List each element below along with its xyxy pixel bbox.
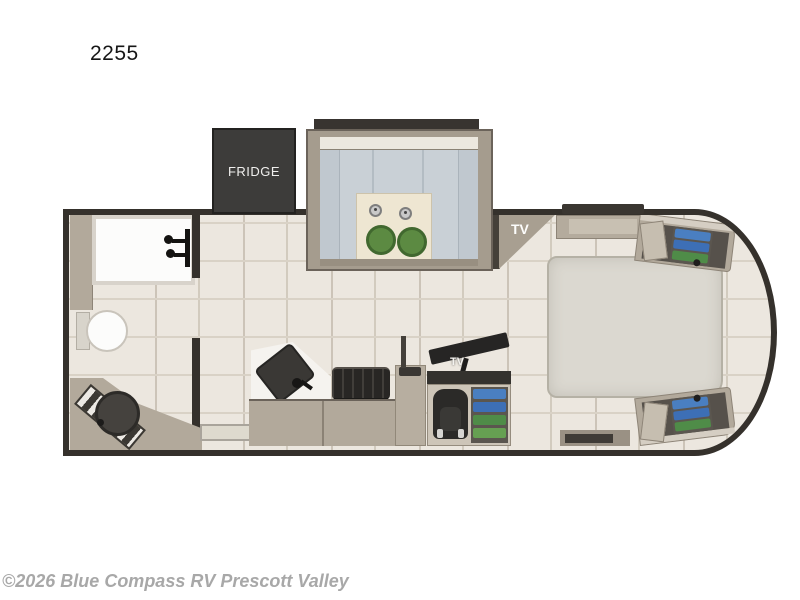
shower-valve-icon: [185, 229, 190, 267]
kitchen-end-cabinet: [395, 365, 426, 446]
window-bar: [562, 204, 644, 214]
backpack: [433, 389, 468, 439]
backpack-strap: [437, 429, 443, 438]
stove-cooktop: [332, 367, 390, 400]
wardrobe-door: [639, 221, 667, 262]
bathroom-cabinet: [70, 215, 93, 310]
dinette-seat-front: [320, 259, 478, 266]
shower: [92, 215, 195, 285]
toilet: [86, 310, 128, 352]
shelf-item: [674, 418, 711, 431]
shelf-item: [672, 250, 709, 263]
kitchen-wall-stub: [401, 336, 406, 368]
counter-seam: [322, 401, 324, 446]
cup-icon: [399, 207, 412, 220]
slideout-end-wall: [320, 137, 478, 150]
dinette-bench-right: [458, 150, 478, 260]
overhead-cabinet-panel: [569, 219, 637, 234]
wardrobe-tv-unit: [427, 384, 511, 446]
bedside-mat-dark: [565, 434, 613, 443]
tv-corner-wall: [493, 213, 500, 269]
kitchen-counter: [249, 399, 395, 446]
dinette-stool: [397, 227, 427, 257]
wardrobe-shelves: [669, 394, 713, 435]
shelf-item: [473, 428, 506, 438]
tv-wardrobe-top: [427, 371, 511, 384]
entry-mat: [200, 424, 254, 441]
dinette-slideout: [306, 129, 493, 271]
wardrobe-shelves: [471, 387, 508, 443]
countertop-item: [399, 367, 421, 376]
shower-knob-icon: [166, 249, 175, 258]
backpack-pocket: [440, 407, 461, 431]
fridge-label: FRIDGE: [228, 164, 280, 179]
backpack-strap: [458, 429, 464, 438]
shelf-item: [473, 402, 506, 412]
bed: [547, 256, 723, 398]
tv-lift-panel: [428, 332, 509, 365]
overhead-cabinet: [556, 215, 648, 239]
dinette-stool: [366, 225, 396, 255]
floorplan-model-number: 2255: [90, 42, 139, 66]
shelf-item: [473, 389, 506, 399]
vanity-faucet-icon: [97, 419, 104, 426]
cup-icon: [369, 204, 382, 217]
copyright-watermark: ©2026 Blue Compass RV Prescott Valley: [2, 571, 349, 592]
shower-knob-icon: [164, 235, 173, 244]
bathroom-wall-upper: [192, 215, 200, 278]
wardrobe-door: [640, 402, 668, 443]
vanity-sink: [95, 391, 140, 436]
floorplan-page: 2255: [0, 0, 800, 600]
shower-valve-handle: [172, 239, 186, 243]
tv-label-bedroom: TV: [450, 356, 464, 368]
shelf-item: [473, 415, 506, 425]
dinette-bench-left: [320, 150, 340, 260]
wardrobe-shelves: [669, 226, 713, 267]
front-wardrobe-bottom: [634, 387, 736, 446]
shower-valve-handle: [174, 253, 186, 257]
fridge: FRIDGE: [212, 128, 296, 214]
tv-label-living: TV: [499, 213, 557, 237]
